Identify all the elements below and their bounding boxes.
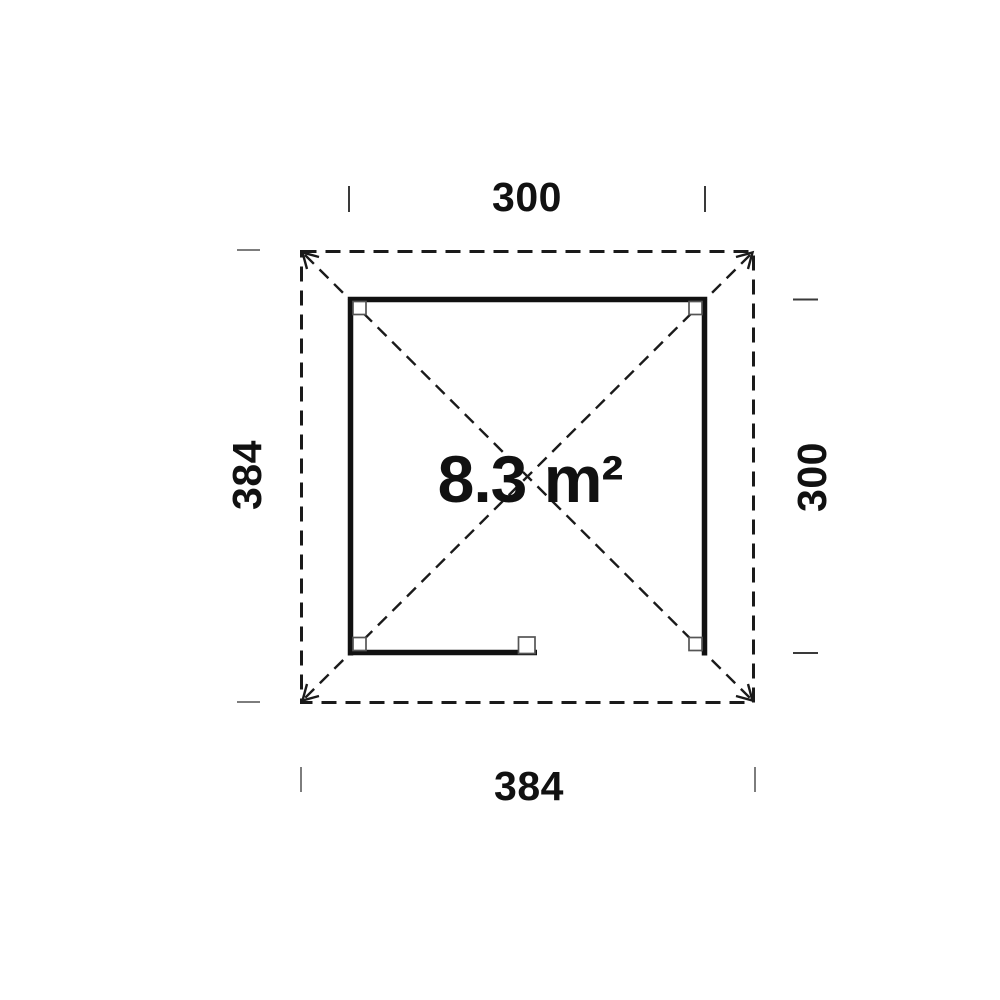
post-bottom-right xyxy=(689,638,702,651)
post-top-right xyxy=(689,302,702,315)
floor-plan-canvas: 300 384 384 300 8.3 m² xyxy=(0,0,1000,1000)
post-top-left xyxy=(353,302,366,315)
dimension-top-label: 300 xyxy=(492,174,562,220)
post-bottom-left xyxy=(353,638,366,651)
dimension-bottom-label: 384 xyxy=(494,763,564,809)
dimension-right-label: 300 xyxy=(789,442,835,512)
area-label: 8.3 m² xyxy=(438,442,623,516)
post-door-opening xyxy=(519,637,536,654)
floor-plan-drawing: 300 384 384 300 8.3 m² xyxy=(0,0,1000,1000)
dimension-left-label: 384 xyxy=(224,440,270,510)
